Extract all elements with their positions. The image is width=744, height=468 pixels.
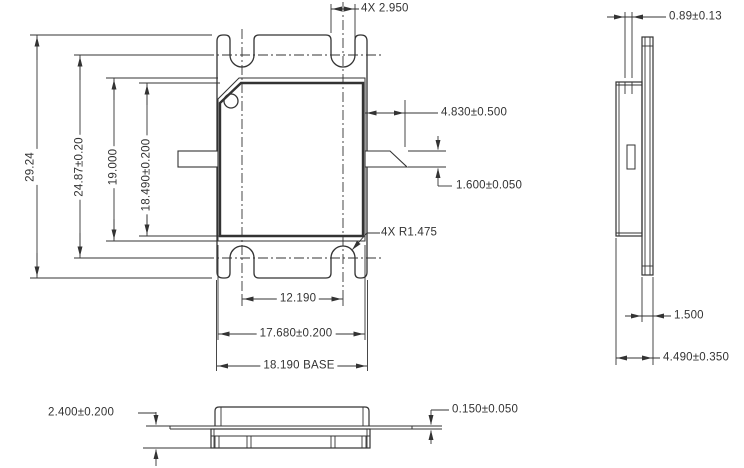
dim-base-height-label: 2.400±0.200 (48, 407, 114, 420)
front-dimensions (30, 4, 452, 371)
flange-outline (217, 35, 367, 278)
dim-body-height-label: 18.490±0.200 (141, 136, 154, 215)
dim-base-width-label: 18.190 BASE (260, 360, 337, 373)
side-lead-tab (627, 145, 635, 169)
dim-overall-height-label: 29.24 (25, 149, 38, 185)
side-view (607, 12, 671, 365)
dim-overall-thickness-label: 4.490±0.350 (663, 352, 729, 365)
body-outline (220, 83, 363, 236)
dim-flange-thickness-label: 1.500 (674, 310, 704, 323)
drawing-linework (0, 0, 744, 468)
dim-lead-length-label: 4.830±0.500 (441, 107, 507, 120)
dim-lip-thickness-label: 0.89±0.13 (669, 11, 722, 24)
dim-slot-pitch-label: 12.190 (277, 293, 319, 306)
dim-slot-center-span-label: 24.87±0.20 (74, 134, 87, 199)
bottom-cap (215, 407, 369, 426)
pin1-marker (224, 94, 238, 108)
bottom-base-slot-marks (214, 429, 367, 448)
bottom-view (138, 407, 449, 466)
dim-lead-width-label: 1.600±0.050 (456, 180, 522, 193)
technical-drawing-canvas: 4X 2.950 0.89±0.13 29.24 24.87±0.20 19.0… (0, 0, 744, 468)
front-view (30, 2, 452, 371)
dim-slot-radius-label: 4X R1.475 (381, 227, 437, 240)
dim-lead-thickness-label: 0.150±0.050 (452, 404, 518, 417)
bottom-dimensions (138, 410, 449, 466)
bottom-base (211, 429, 370, 448)
side-flange (642, 37, 653, 275)
right-lead (365, 151, 407, 167)
left-lead (178, 151, 218, 167)
dim-body-width-label: 17.680±0.200 (257, 328, 336, 341)
dim-lid-height-label: 19.000 (108, 146, 121, 188)
dim-slot-width-label: 4X 2.950 (361, 3, 409, 16)
